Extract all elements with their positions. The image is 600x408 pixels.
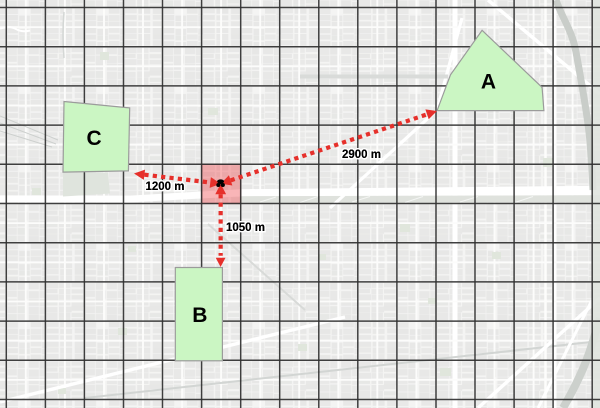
svg-text:2900 m: 2900 m: [342, 149, 381, 161]
svg-text:1200 m: 1200 m: [146, 181, 185, 193]
svg-text:1050 m: 1050 m: [226, 222, 265, 234]
svg-text:A: A: [481, 71, 496, 94]
svg-text:C: C: [87, 127, 102, 150]
svg-text:B: B: [192, 304, 207, 327]
